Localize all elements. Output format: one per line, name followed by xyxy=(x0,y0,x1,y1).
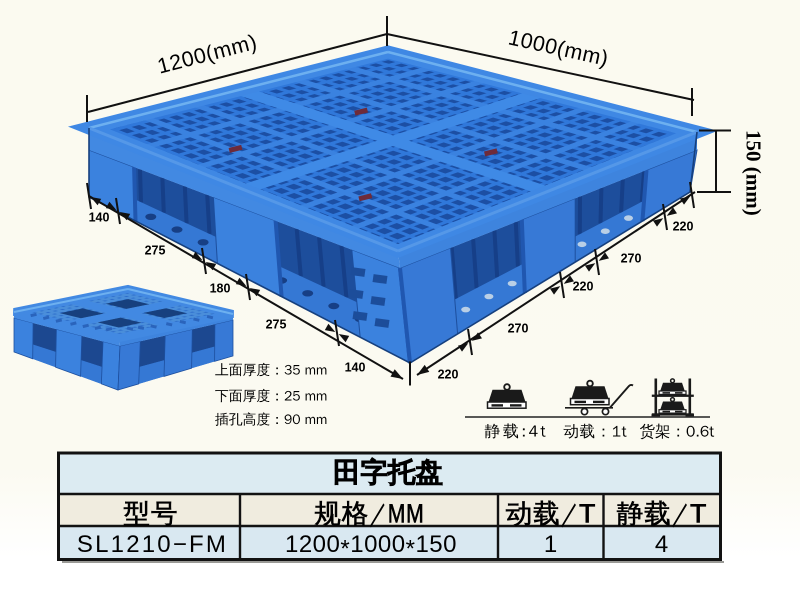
svg-text:275: 275 xyxy=(145,244,166,258)
svg-text:1200*1000*150: 1200*1000*150 xyxy=(285,531,457,563)
svg-text:270: 270 xyxy=(508,322,529,336)
svg-text:140: 140 xyxy=(89,211,110,225)
svg-text:SL1210−FM: SL1210−FM xyxy=(77,531,228,558)
svg-text:4: 4 xyxy=(655,531,668,558)
svg-text:275: 275 xyxy=(266,318,287,332)
svg-text:220: 220 xyxy=(573,280,594,294)
svg-text:220: 220 xyxy=(673,220,694,234)
svg-text:1: 1 xyxy=(544,531,557,558)
svg-text:180: 180 xyxy=(210,282,231,296)
svg-text:150 (mm): 150 (mm) xyxy=(742,130,766,216)
svg-text:220: 220 xyxy=(438,368,459,382)
svg-text:270: 270 xyxy=(621,252,642,266)
svg-text:140: 140 xyxy=(345,361,366,375)
